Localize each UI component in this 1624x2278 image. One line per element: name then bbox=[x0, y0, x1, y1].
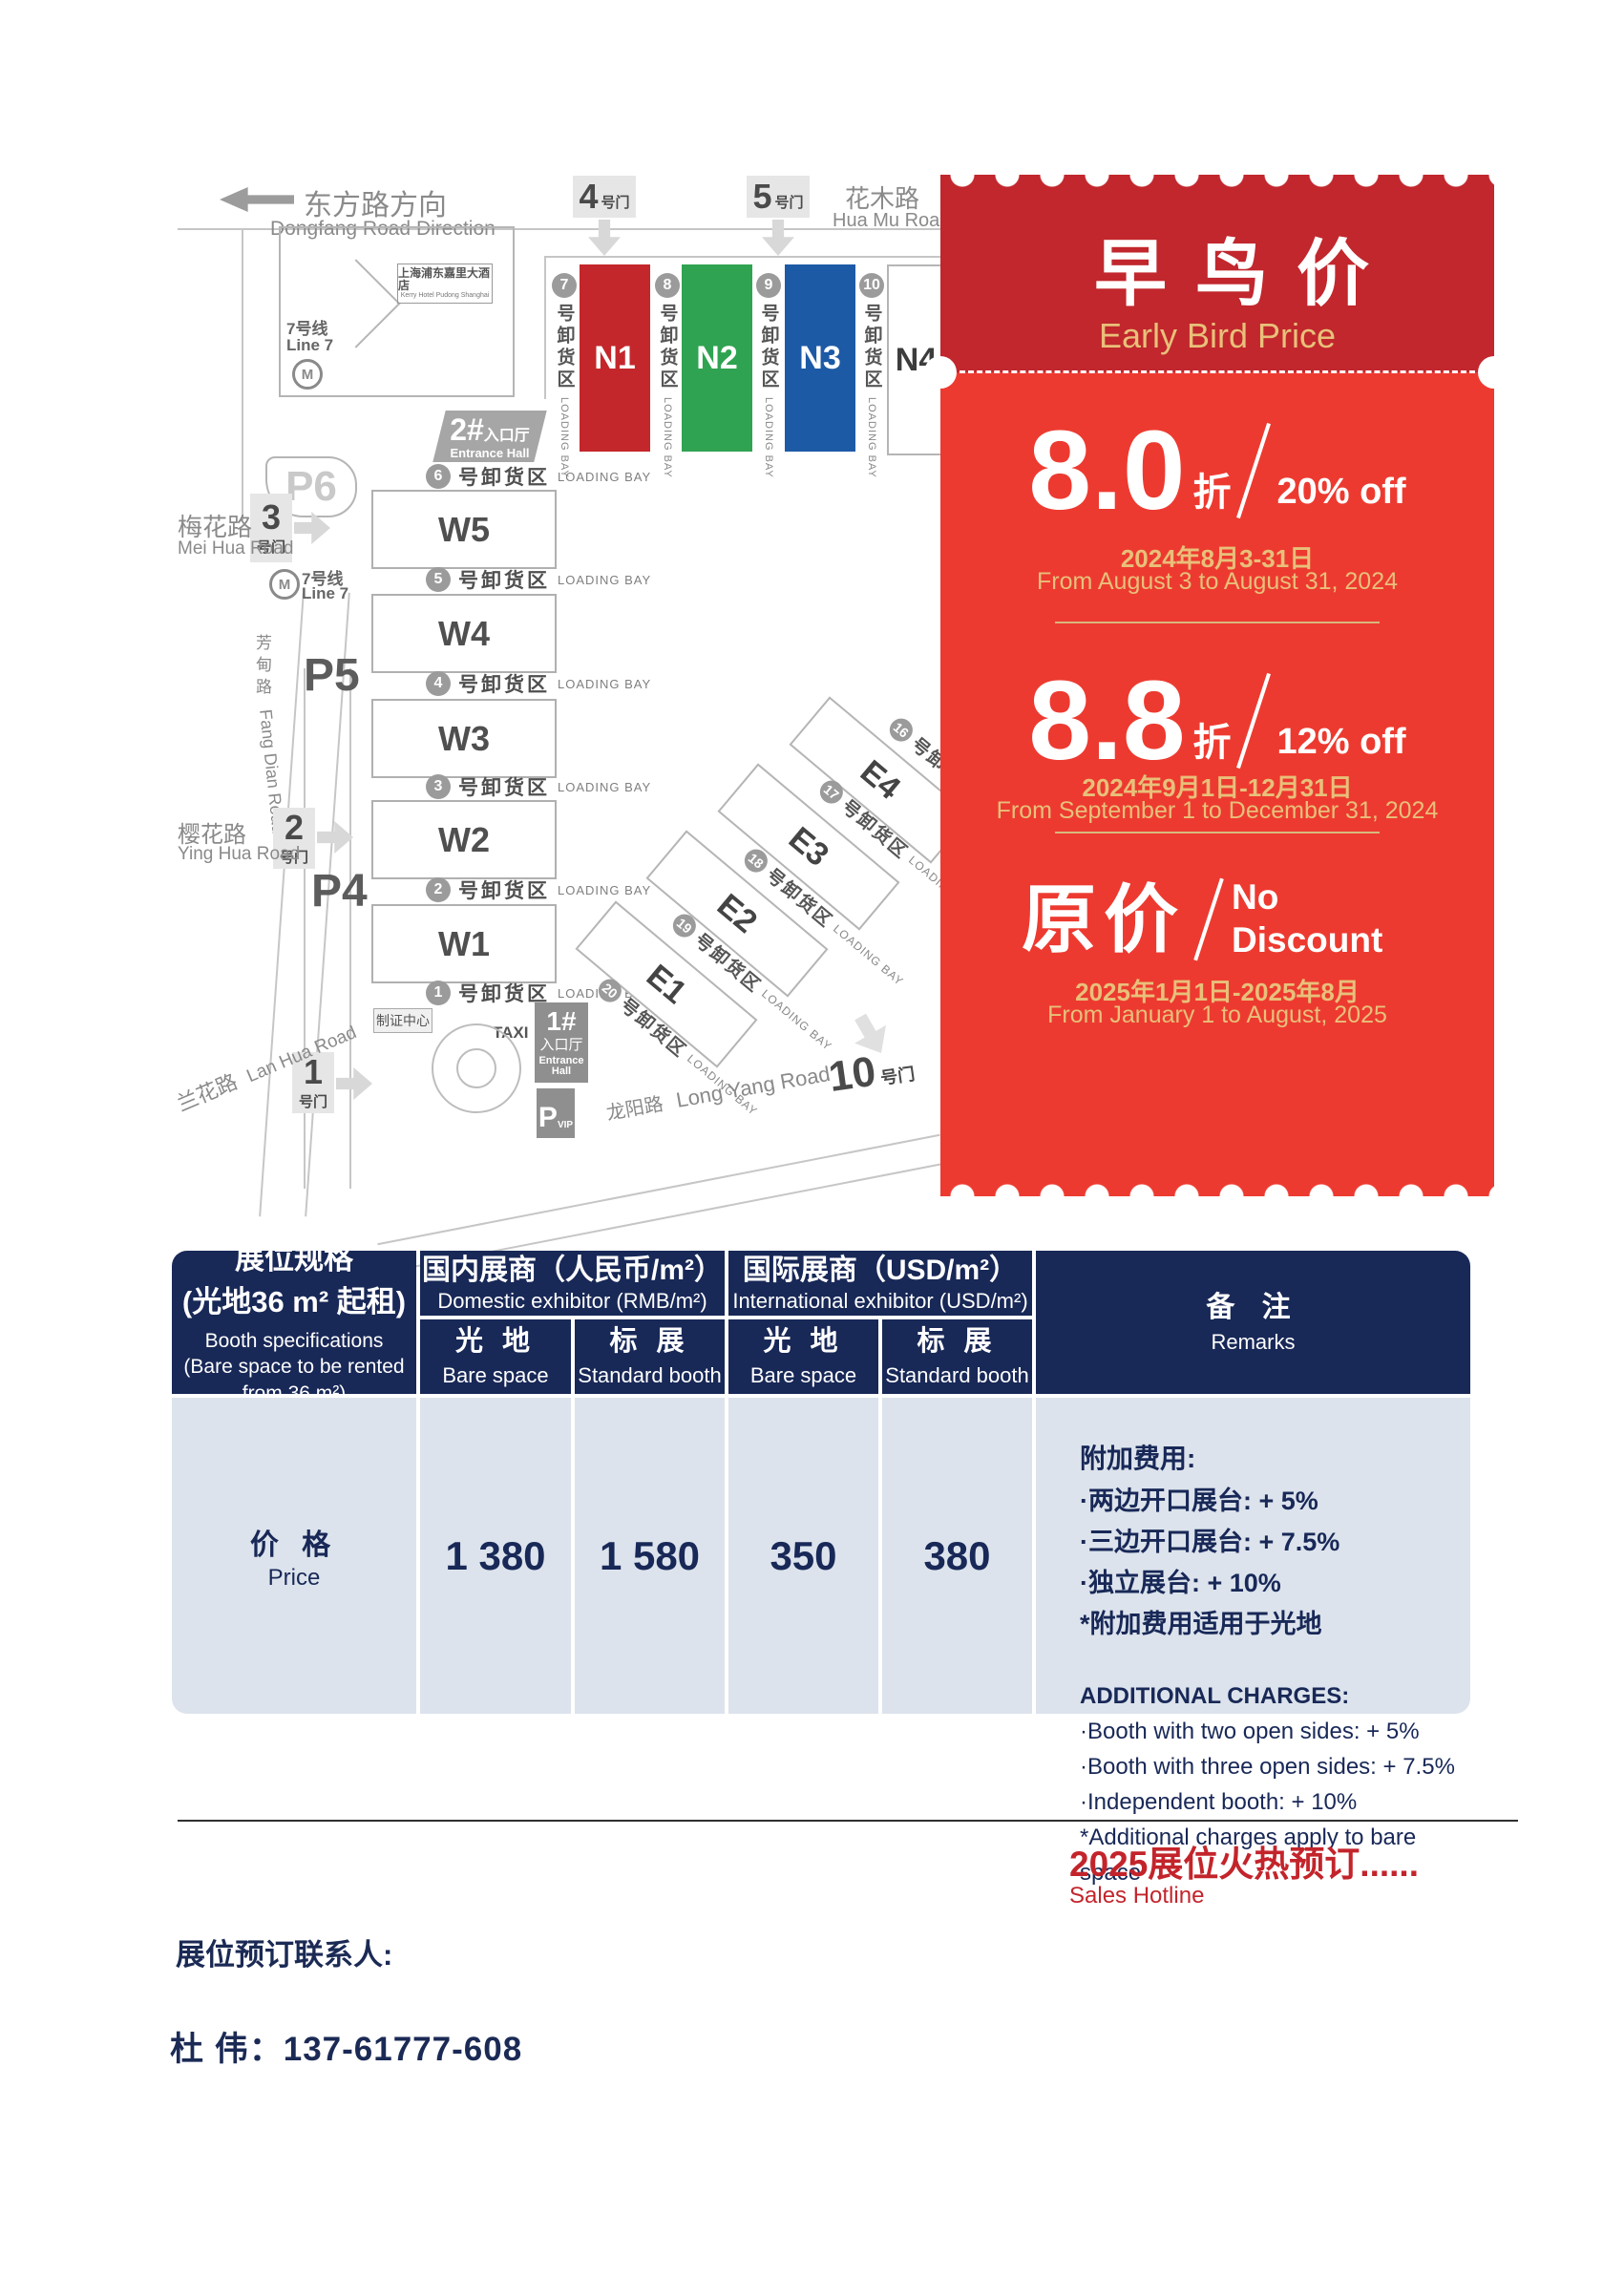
ticket-scallop-top bbox=[940, 175, 1494, 189]
spec-en: Booth specifications (Bare space to be r… bbox=[183, 1328, 404, 1406]
left-arrow-icon bbox=[220, 187, 294, 212]
road-left-vertical bbox=[242, 229, 243, 520]
gate-10-number: 10 bbox=[826, 1048, 878, 1101]
subcol-international-standard: 标 展 Standard booth bbox=[882, 1319, 1032, 1394]
price-domestic-standard: 1 580 bbox=[575, 1398, 725, 1714]
metro-icon-hotel: M bbox=[292, 359, 323, 390]
domestic-en: Domestic exhibitor (RMB/m²) bbox=[437, 1288, 707, 1315]
tier1-number: 8.0 bbox=[1028, 414, 1185, 527]
entrance-1-en: Entrance Hall bbox=[538, 1056, 585, 1078]
gate-4-suffix: 号门 bbox=[601, 192, 630, 212]
tier3-label: 原价 bbox=[1022, 882, 1186, 957]
bay-8-number: 8 bbox=[655, 273, 680, 298]
parking-p6-label: P6 bbox=[285, 463, 337, 511]
longyang-road-zh: 龙阳路 bbox=[605, 1094, 665, 1125]
hotel-label-box: 上海浦东嘉里大酒店 Kerry Hotel Pudong Shanghai bbox=[397, 264, 493, 304]
parking-p4: P4 bbox=[311, 865, 368, 918]
remarks-body: 附加费用: ·两边开口展台: + 5% ·三边开口展台: + 7.5% ·独立展… bbox=[1036, 1398, 1470, 1714]
value-domestic-standard: 1 580 bbox=[600, 1533, 700, 1579]
gate-2-number: 2 bbox=[285, 811, 304, 845]
subcol-domestic-standard: 标 展 Standard booth bbox=[575, 1319, 725, 1394]
value-international-bare: 350 bbox=[770, 1533, 836, 1579]
spec-zh2: (光地36 m² 起租) bbox=[182, 1281, 406, 1324]
ticket-divider-1 bbox=[1055, 622, 1380, 623]
contact-label: 展位预订联系人: bbox=[176, 1930, 392, 1973]
entrance-hall-1: 1# 入口厅 Entrance Hall bbox=[535, 1002, 588, 1083]
roundabout-inner bbox=[456, 1048, 496, 1088]
remark-zh-3: ·独立展台: + 10% bbox=[1080, 1563, 1281, 1604]
footer-divider bbox=[178, 1820, 1518, 1822]
tier1-unit: 折 bbox=[1192, 461, 1231, 517]
loading-bay-5: 5 号卸货区 LOADING BAY bbox=[426, 565, 651, 594]
entrance-1-number: 1# bbox=[546, 1006, 576, 1036]
hall-n3-label: N3 bbox=[799, 340, 840, 377]
badge-center: 制证中心 bbox=[373, 1008, 432, 1033]
entrance-2-number: 2# bbox=[450, 412, 484, 447]
hall-w3-label: W3 bbox=[438, 719, 490, 759]
meihua-road-en: Mei Hua Road bbox=[178, 538, 293, 559]
contact-phone: 杜 伟：137-61777-608 bbox=[170, 2022, 522, 2071]
intl-bare-en: Bare space bbox=[750, 1362, 856, 1389]
bay-2-number: 2 bbox=[426, 877, 451, 902]
intl-std-en: Standard booth bbox=[885, 1362, 1028, 1389]
hall-w3: W3 bbox=[371, 699, 557, 778]
bay-10-zh: 号卸货区 bbox=[859, 304, 885, 391]
loading-bay-6: 6 号卸货区 LOADING BAY bbox=[426, 462, 651, 491]
ticket-hole-left bbox=[924, 356, 957, 389]
gate-10: 10 号门 bbox=[826, 1043, 917, 1102]
ticket-perforation bbox=[960, 370, 1475, 373]
hall-w4: W4 bbox=[371, 594, 557, 673]
bay-19-en: LOADING BAY bbox=[759, 986, 834, 1053]
hall-n2: N2 bbox=[682, 264, 752, 452]
bay-1-number: 1 bbox=[426, 981, 451, 1005]
loading-bay-8: 8 号卸货区 LOADING BAY bbox=[653, 273, 682, 478]
remark-zh-1: ·两边开口展台: + 5% bbox=[1080, 1481, 1318, 1522]
hall-e1-label: E1 bbox=[640, 958, 694, 1012]
remark-en-0: ADDITIONAL CHARGES: bbox=[1080, 1678, 1349, 1714]
subcol-international-bare: 光 地 Bare space bbox=[728, 1319, 878, 1394]
price-international-bare: 350 bbox=[728, 1398, 878, 1714]
remarks-en: Remarks bbox=[1211, 1329, 1295, 1356]
hall-w1: W1 bbox=[371, 904, 557, 983]
price-label-en: Price bbox=[268, 1565, 321, 1592]
subcol-domestic-bare: 光 地 Bare space bbox=[420, 1319, 571, 1394]
flyer-page: 东方路方向 Dongfang Road Direction 上海浦东嘉里大酒店 … bbox=[0, 0, 1624, 2278]
gate-5-arrow-icon bbox=[762, 220, 794, 256]
bay-9-en: LOADING BAY bbox=[763, 397, 774, 478]
hall-w1-label: W1 bbox=[438, 924, 490, 964]
gate-5-suffix: 号门 bbox=[775, 192, 804, 212]
tier3-discount: No Discount bbox=[1232, 876, 1413, 961]
expo-boundary-left bbox=[544, 256, 546, 399]
dom-bare-en: Bare space bbox=[442, 1362, 548, 1389]
gate-3-number: 3 bbox=[262, 500, 281, 535]
loading-bay-7: 7 号卸货区 LOADING BAY bbox=[550, 273, 579, 478]
bay-8-zh: 号卸货区 bbox=[655, 304, 681, 391]
ticket-hole-right bbox=[1478, 356, 1510, 389]
col-group-domestic: 国内展商（人民币/m²） Domestic exhibitor (RMB/m²) bbox=[420, 1251, 725, 1316]
bay-6-number: 6 bbox=[426, 464, 451, 489]
parking-vip: P VIP bbox=[537, 1088, 575, 1138]
gate-10-suffix: 号门 bbox=[879, 1065, 916, 1088]
parking-p5: P5 bbox=[304, 649, 360, 702]
dom-std-en: Standard booth bbox=[578, 1362, 721, 1389]
tier2-number: 8.8 bbox=[1028, 664, 1185, 777]
hall-e2-label: E2 bbox=[710, 887, 765, 941]
domestic-zh: 国内展商（人民币/m²） bbox=[422, 1253, 723, 1289]
bay-3-zh: 号卸货区 bbox=[458, 772, 550, 801]
gate-1-arrow-icon bbox=[336, 1067, 372, 1100]
remarks-zh: 备 注 bbox=[1206, 1290, 1299, 1326]
tier1-discount: 20% off bbox=[1276, 472, 1405, 513]
tier2-unit: 折 bbox=[1192, 711, 1231, 767]
hall-w5-label: W5 bbox=[438, 510, 490, 550]
parking-vip-sub: VIP bbox=[558, 1121, 573, 1131]
tier3-date-en: From January 1 to August, 2025 bbox=[940, 1002, 1494, 1029]
loading-bay-4: 4 号卸货区 LOADING BAY bbox=[426, 669, 651, 698]
bay-7-number: 7 bbox=[552, 273, 577, 298]
hotel-name-zh: 上海浦东嘉里大酒店 bbox=[398, 267, 492, 292]
hall-n1-label: N1 bbox=[594, 340, 635, 377]
remark-zh-2: ·三边开口展台: + 7.5% bbox=[1080, 1522, 1339, 1563]
value-domestic-bare: 1 380 bbox=[445, 1533, 545, 1579]
tier1-row: 8.0 折 20% off bbox=[940, 411, 1494, 530]
entrance-hall-2: 2#入口厅 Entrance Hall bbox=[432, 411, 546, 462]
bay-4-number: 4 bbox=[426, 671, 451, 696]
tier2-row: 8.8 折 12% off bbox=[940, 662, 1494, 780]
remark-en-3: ·Independent booth: + 10% bbox=[1080, 1784, 1357, 1820]
gate-road-line2 bbox=[349, 668, 351, 1189]
sales-hotline-zh: 2025展位火热预订...... bbox=[1069, 1835, 1419, 1887]
bay-2-en: LOADING BAY bbox=[558, 883, 651, 897]
expo-boundary-top bbox=[544, 256, 940, 258]
hall-n2-label: N2 bbox=[696, 340, 737, 377]
huamu-road-en: Hua Mu Road bbox=[833, 210, 950, 232]
tier2-slash bbox=[1236, 673, 1271, 769]
bay-3-en: LOADING BAY bbox=[558, 780, 651, 794]
ticket-scallop-bottom bbox=[940, 1182, 1494, 1196]
gate-4-number: 4 bbox=[579, 179, 598, 214]
bay-9-number: 9 bbox=[756, 273, 781, 298]
bay-10-en: LOADING BAY bbox=[866, 397, 877, 478]
ticket-title-zh: 早鸟价 bbox=[940, 215, 1523, 320]
hall-w2-label: W2 bbox=[438, 820, 490, 860]
col-header-spec: 展位规格 (光地36 m² 起租) Booth specifications (… bbox=[172, 1251, 416, 1394]
parking-vip-p: P bbox=[538, 1105, 558, 1130]
bay-10-number: 10 bbox=[859, 273, 884, 298]
ticket-divider-2 bbox=[1055, 832, 1380, 833]
bay-9-zh: 号卸货区 bbox=[756, 304, 782, 391]
entrance-2-zh: 入口厅 bbox=[484, 428, 530, 444]
gate-5-number: 5 bbox=[752, 179, 771, 214]
bay-5-zh: 号卸货区 bbox=[458, 565, 550, 594]
gate-2-arrow-icon bbox=[317, 821, 353, 854]
bay-5-number: 5 bbox=[426, 567, 451, 592]
intl-bare-zh: 光 地 bbox=[763, 1324, 843, 1359]
remark-zh-4: *附加费用适用于光地 bbox=[1080, 1604, 1322, 1645]
pricing-table: 展位规格 (光地36 m² 起租) Booth specifications (… bbox=[172, 1251, 1470, 1714]
sales-hotline-en: Sales Hotline bbox=[1069, 1883, 1204, 1909]
badge-center-label: 制证中心 bbox=[376, 1011, 430, 1030]
loading-bay-10: 10 号卸货区 LOADING BAY bbox=[857, 273, 886, 478]
tier2-date-en: From September 1 to December 31, 2024 bbox=[940, 797, 1494, 825]
hall-w5: W5 bbox=[371, 490, 557, 569]
early-bird-ticket: 早鸟价 Early Bird Price 8.0 折 20% off 2024年… bbox=[940, 175, 1494, 1196]
hall-w2: W2 bbox=[371, 800, 557, 879]
metro-icon-p5: M bbox=[269, 569, 300, 600]
loading-bay-2: 2 号卸货区 LOADING BAY bbox=[426, 875, 651, 904]
tier1-slash bbox=[1236, 423, 1271, 518]
gate-5: 5 号门 bbox=[747, 176, 810, 218]
bay-6-zh: 号卸货区 bbox=[458, 462, 550, 491]
bay-4-zh: 号卸货区 bbox=[458, 669, 550, 698]
bay-5-en: LOADING BAY bbox=[558, 573, 651, 587]
bay-18-en: LOADING BAY bbox=[831, 921, 906, 988]
bay-2-zh: 号卸货区 bbox=[458, 875, 550, 904]
hall-n1: N1 bbox=[580, 264, 650, 452]
gate-1-suffix: 号门 bbox=[299, 1091, 327, 1111]
bay-4-en: LOADING BAY bbox=[558, 677, 651, 691]
line7-hotel-en: Line 7 bbox=[286, 336, 333, 355]
loading-bay-9: 9 号卸货区 LOADING BAY bbox=[754, 273, 783, 478]
tier3-row: 原价 No Discount bbox=[940, 864, 1494, 974]
dom-std-zh: 标 展 bbox=[609, 1324, 689, 1359]
longyang-road-line1 bbox=[377, 1134, 939, 1245]
bay-7-zh: 号卸货区 bbox=[552, 304, 578, 391]
line7-p5-en: Line 7 bbox=[302, 584, 348, 603]
tier1-date-en: From August 3 to August 31, 2024 bbox=[940, 568, 1494, 596]
remark-en-1: ·Booth with two open sides: + 5% bbox=[1080, 1714, 1420, 1749]
value-international-standard: 380 bbox=[923, 1533, 990, 1579]
intl-std-zh: 标 展 bbox=[917, 1324, 997, 1359]
dom-bare-zh: 光 地 bbox=[455, 1324, 536, 1359]
fangdian-road-zh: 芳甸路 bbox=[250, 634, 274, 700]
bay-8-en: LOADING BAY bbox=[662, 397, 673, 478]
yinghua-road-en: Ying Hua Road bbox=[178, 844, 300, 865]
hall-e3-label: E3 bbox=[782, 820, 836, 875]
price-domestic-bare: 1 380 bbox=[420, 1398, 571, 1714]
lanhua-road-zh: 兰花路 bbox=[174, 1069, 242, 1116]
international-zh: 国际展商（USD/m²） bbox=[743, 1253, 1018, 1289]
gate-4-arrow-icon bbox=[588, 220, 621, 256]
international-en: International exhibitor (USD/m²) bbox=[732, 1288, 1027, 1315]
entrance-1-zh: 入口厅 bbox=[539, 1038, 582, 1053]
tier3-slash bbox=[1193, 877, 1224, 960]
hall-n3: N3 bbox=[785, 264, 855, 452]
ticket-title-en: Early Bird Price bbox=[940, 316, 1494, 356]
gate-4: 4 号门 bbox=[573, 176, 636, 218]
bay-3-number: 3 bbox=[426, 774, 451, 799]
col-group-international: 国际展商（USD/m²） International exhibitor (US… bbox=[728, 1251, 1032, 1316]
remark-zh-0: 附加费用: bbox=[1080, 1438, 1195, 1481]
tier2-discount: 12% off bbox=[1276, 722, 1405, 763]
hall-w4-label: W4 bbox=[438, 614, 490, 654]
col-header-remarks: 备 注 Remarks bbox=[1036, 1251, 1470, 1394]
entrance-2-en: Entrance Hall bbox=[450, 447, 529, 459]
loading-bay-3: 3 号卸货区 LOADING BAY bbox=[426, 772, 651, 801]
remark-en-2: ·Booth with three open sides: + 7.5% bbox=[1080, 1749, 1455, 1784]
hotel-name-en: Kerry Hotel Pudong Shanghai bbox=[401, 292, 490, 300]
bay-6-en: LOADING BAY bbox=[558, 470, 651, 484]
price-international-standard: 380 bbox=[882, 1398, 1032, 1714]
price-row-label: 价 格 Price bbox=[172, 1398, 416, 1714]
spec-zh1: 展位规格 bbox=[235, 1238, 353, 1281]
price-label-zh: 价 格 bbox=[250, 1521, 338, 1563]
